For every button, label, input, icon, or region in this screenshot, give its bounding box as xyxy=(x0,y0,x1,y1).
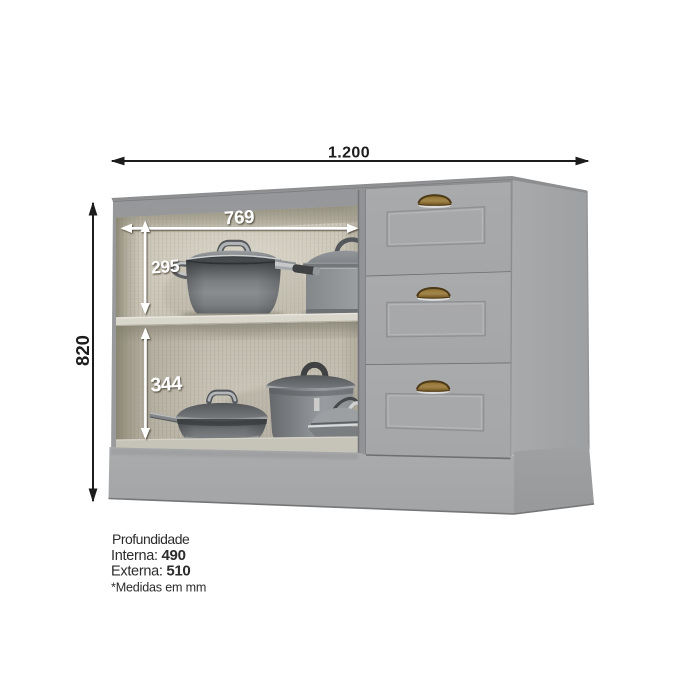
svg-text:Interna: 490: Interna: 490 xyxy=(111,547,186,564)
svg-text:344: 344 xyxy=(150,372,183,396)
svg-text:769: 769 xyxy=(224,206,255,229)
svg-text:Externa: 510: Externa: 510 xyxy=(111,562,190,579)
svg-text:*Medidas em mm: *Medidas em mm xyxy=(111,581,206,595)
svg-text:295: 295 xyxy=(150,256,180,278)
svg-text:820: 820 xyxy=(72,335,93,366)
svg-text:Profundidade: Profundidade xyxy=(112,531,190,547)
svg-text:1.200: 1.200 xyxy=(328,145,370,162)
